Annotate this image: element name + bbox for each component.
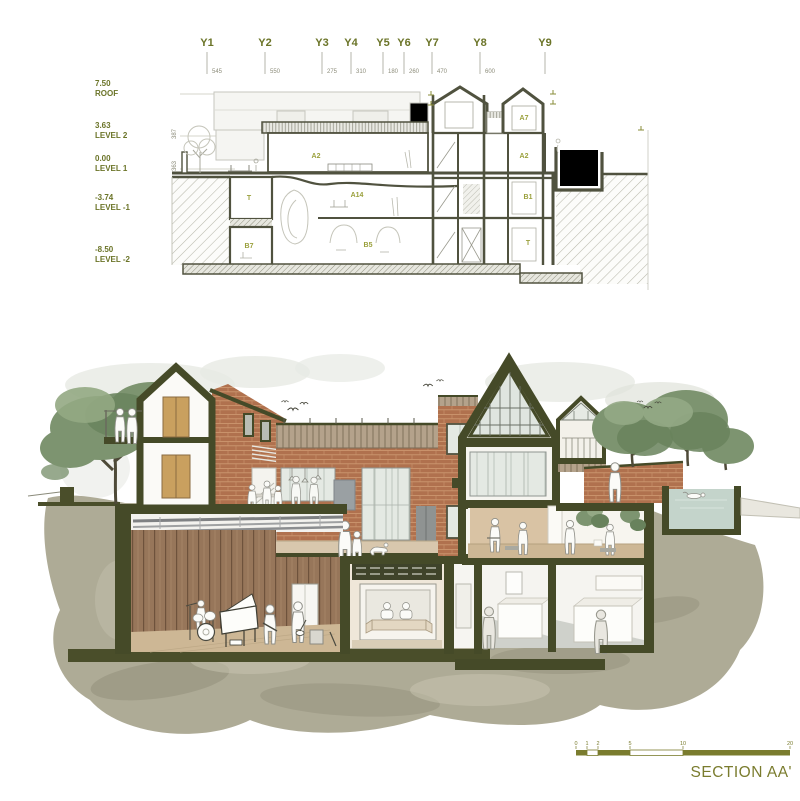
rendered-section-drawing: 0 1 2 5 10 20 SECTION AA' (28, 354, 800, 781)
grid-axis-y3: Y3 275 (315, 37, 337, 75)
svg-text:-3.74: -3.74 (95, 193, 114, 202)
grid-axis-y1: Y1 545 (200, 37, 222, 75)
svg-text:Y8: Y8 (473, 37, 486, 49)
room-label-a7: A7 (520, 115, 529, 122)
room-label-t-right: T (526, 240, 531, 247)
room-label-b5: B5 (364, 242, 373, 249)
svg-text:387: 387 (172, 128, 178, 139)
svg-text:363: 363 (172, 160, 178, 171)
pool-cut (556, 139, 602, 190)
svg-text:Y1: Y1 (200, 37, 213, 49)
svg-text:0: 0 (574, 741, 577, 747)
right-slope (741, 498, 800, 518)
svg-text:310: 310 (356, 69, 367, 75)
svg-text:LEVEL -2: LEVEL -2 (95, 255, 131, 264)
grid-axis-y9: Y9 (538, 37, 551, 74)
music-hall (115, 504, 350, 654)
upper-door (163, 397, 189, 437)
svg-text:3.63: 3.63 (95, 121, 111, 130)
svg-text:LEVEL 2: LEVEL 2 (95, 131, 128, 140)
room-label-a14: A14 (351, 192, 364, 199)
pool (662, 486, 741, 535)
grid-axis-y6: Y6 260 (397, 37, 419, 75)
room-label-b7: B7 (245, 243, 254, 250)
level-1: 0.00 LEVEL 1 363 (95, 154, 235, 173)
room-label-a2: A2 (312, 153, 321, 160)
grid-axis-y7: Y7 470 (425, 37, 447, 75)
svg-text:Y9: Y9 (538, 37, 551, 49)
ground-hatch-left (172, 177, 230, 265)
svg-text:Y4: Y4 (344, 37, 358, 49)
svg-text:0.00: 0.00 (95, 154, 111, 163)
svg-text:5: 5 (628, 741, 631, 747)
lower-door (162, 455, 190, 498)
grid-axis-y2: Y2 550 (258, 37, 280, 75)
svg-text:Y2: Y2 (258, 37, 271, 49)
gable-roofs (433, 87, 543, 133)
right-trees (592, 390, 754, 470)
scale-bar: 0 1 2 5 10 20 (574, 741, 793, 756)
svg-text:550: 550 (270, 69, 281, 75)
svg-text:275: 275 (327, 69, 338, 75)
svg-text:10: 10 (680, 741, 686, 747)
svg-text:Y5: Y5 (376, 37, 389, 49)
svg-text:Y7: Y7 (425, 37, 438, 49)
svg-text:Y3: Y3 (315, 37, 328, 49)
technical-section-drawing: Y1 545 Y2 550 Y3 275 Y4 310 Y5 180 Y6 26… (95, 37, 648, 290)
grid-axis-y8: Y8 600 (473, 37, 495, 75)
tech-building: A2 A14 B5 T B7 A7 A2 B1 T (172, 87, 648, 290)
base-slab (183, 264, 520, 274)
svg-text:LEVEL 1: LEVEL 1 (95, 164, 128, 173)
svg-text:7.50: 7.50 (95, 79, 111, 88)
base-slab-step (520, 273, 582, 283)
grotto-soffit (272, 177, 458, 187)
svg-text:180: 180 (388, 69, 399, 75)
grid-axes: Y1 545 Y2 550 Y3 275 Y4 310 Y5 180 Y6 26… (200, 37, 551, 75)
svg-text:Y6: Y6 (397, 37, 410, 49)
gym-room (462, 503, 652, 565)
svg-text:ROOF: ROOF (95, 89, 118, 98)
svg-text:1: 1 (585, 741, 588, 747)
room-label-b1: B1 (524, 194, 533, 201)
svg-text:545: 545 (212, 69, 223, 75)
slab (230, 219, 272, 227)
svg-text:LEVEL -1: LEVEL -1 (95, 203, 131, 212)
svg-text:2: 2 (596, 741, 599, 747)
svg-text:260: 260 (409, 69, 420, 75)
basement-room-b (556, 564, 644, 654)
basement-room-a (482, 564, 550, 649)
section-caption: SECTION AA' (691, 764, 792, 781)
svg-text:-8.50: -8.50 (95, 245, 114, 254)
grid-axis-y5: Y5 180 (376, 37, 398, 75)
svg-text:470: 470 (437, 69, 448, 75)
svg-text:20: 20 (787, 741, 793, 747)
svg-text:600: 600 (485, 69, 496, 75)
roof-louvre-band (262, 122, 428, 133)
grid-axis-y4: Y4 310 (344, 37, 366, 75)
recording-studio (350, 564, 444, 648)
room-label-t-left: T (247, 195, 252, 202)
room-label-a2-right: A2 (520, 153, 529, 160)
section-drawings-canvas: Y1 545 Y2 550 Y3 275 Y4 310 Y5 180 Y6 26… (0, 0, 800, 801)
room-a2-main (268, 133, 428, 172)
architectural-section-sheet: Y1 545 Y2 550 Y3 275 Y4 310 Y5 180 Y6 26… (0, 0, 800, 801)
